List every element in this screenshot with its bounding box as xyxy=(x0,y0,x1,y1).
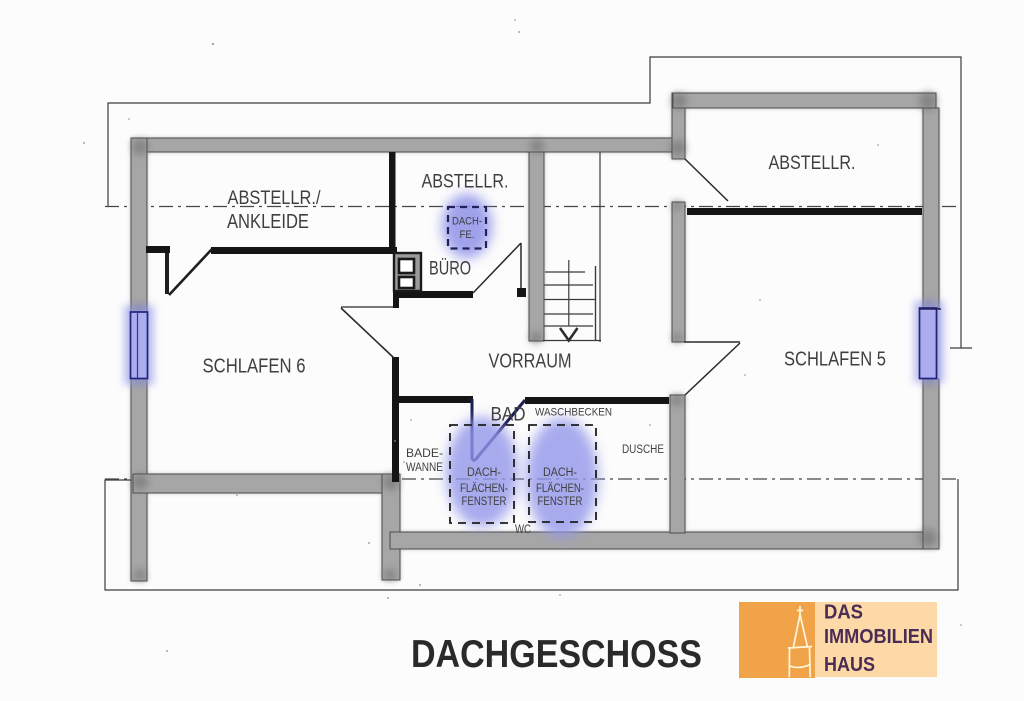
svg-text:BADE-: BADE- xyxy=(406,448,443,460)
svg-text:FE.: FE. xyxy=(460,229,475,241)
svg-text:DAS: DAS xyxy=(824,601,863,624)
svg-text:FLÄCHEN-: FLÄCHEN- xyxy=(460,483,508,495)
svg-text:IMMOBILIEN: IMMOBILIEN xyxy=(824,625,933,648)
svg-text:WC: WC xyxy=(515,524,531,536)
svg-text:FENSTER: FENSTER xyxy=(538,496,583,508)
svg-text:WANNE: WANNE xyxy=(406,462,443,474)
svg-text:HAUS: HAUS xyxy=(824,653,875,676)
svg-text:ANKLEIDE: ANKLEIDE xyxy=(227,211,309,233)
svg-text:BAD: BAD xyxy=(491,404,526,426)
svg-text:SCHLAFEN 6: SCHLAFEN 6 xyxy=(203,356,306,378)
svg-text:BÜRO: BÜRO xyxy=(429,258,471,280)
svg-text:DACHGESCHOSS: DACHGESCHOSS xyxy=(411,633,702,676)
svg-text:SCHLAFEN 5: SCHLAFEN 5 xyxy=(784,349,886,371)
svg-text:ABSTELLR.: ABSTELLR. xyxy=(769,152,856,174)
svg-text:DACH-: DACH- xyxy=(452,216,482,228)
svg-text:FLÄCHEN-: FLÄCHEN- xyxy=(536,483,584,495)
svg-text:FENSTER: FENSTER xyxy=(462,496,507,508)
svg-text:VORRAUM: VORRAUM xyxy=(489,351,572,373)
svg-text:WASCHBECKEN: WASCHBECKEN xyxy=(535,407,612,419)
svg-text:DACH-: DACH- xyxy=(467,467,501,479)
svg-text:ABSTELLR./: ABSTELLR./ xyxy=(228,187,321,209)
svg-text:DUSCHE: DUSCHE xyxy=(622,444,664,456)
svg-text:DACH-: DACH- xyxy=(543,467,577,479)
svg-text:ABSTELLR.: ABSTELLR. xyxy=(422,171,509,193)
